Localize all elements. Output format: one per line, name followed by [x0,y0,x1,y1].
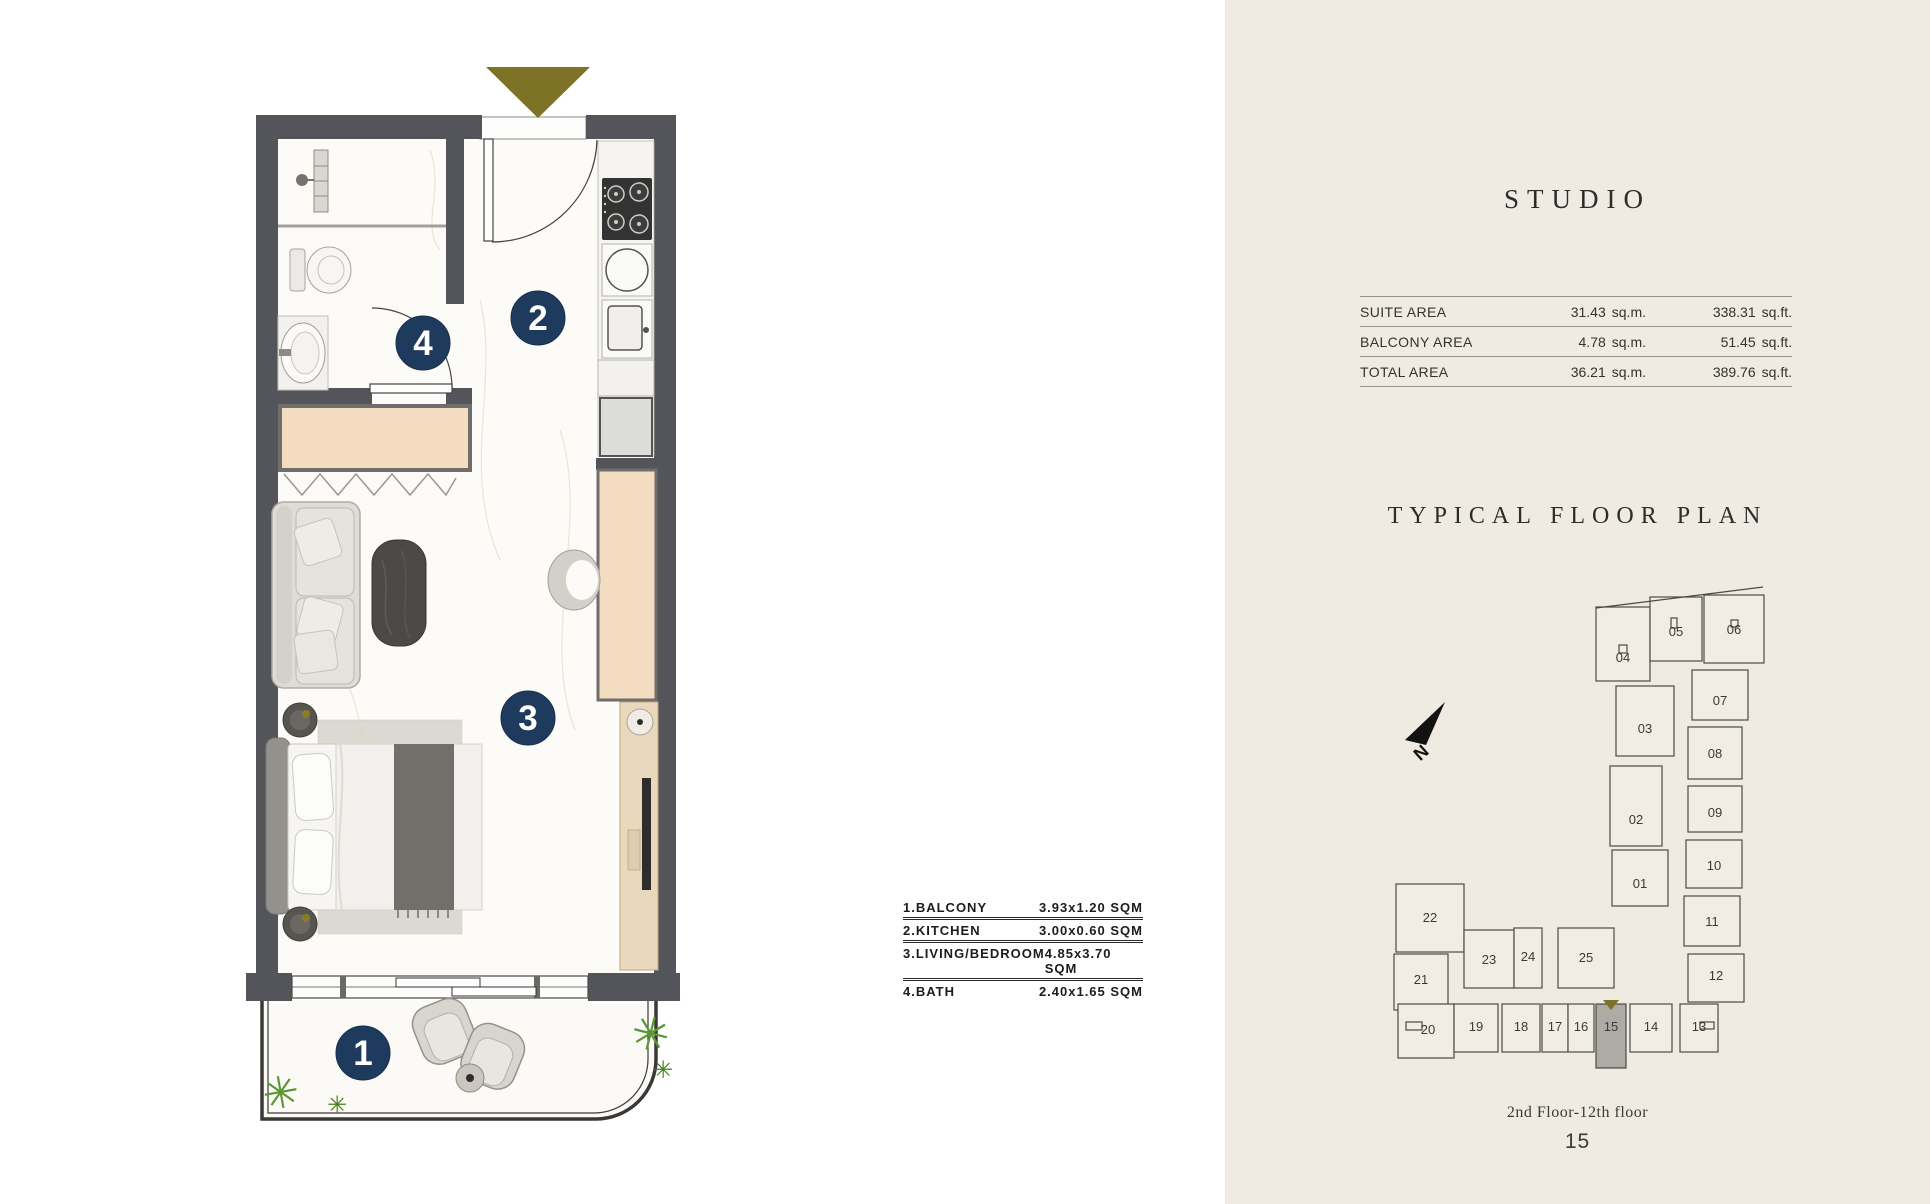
unit-number: 05 [1669,624,1683,639]
sqft-value: 338.31 [1713,304,1756,320]
unit-15-highlight [1596,1004,1626,1068]
legend-row: 4.BATH 2.40x1.65 SQM [903,981,1143,1001]
legend-row: 3.LIVING/BEDROOM 4.85x3.70 SQM [903,943,1143,981]
area-label: BALCONY AREA [1360,334,1518,350]
dimensions-legend: 1.BALCONY 3.93x1.20 SQM 2.KITCHEN 3.00x0… [903,897,1143,1001]
typical-floor-plan-heading: TYPICAL FLOOR PLAN [1225,503,1930,530]
legend-label: 1.BALCONY [903,900,987,915]
unit-type-title: STUDIO [1225,184,1930,215]
faucet-icon [279,349,291,356]
area-label: TOTAL AREA [1360,364,1518,380]
unit-number: 19 [1469,1019,1483,1034]
north-compass-icon: N [1395,698,1455,768]
unit-number-label: 15 [1225,1130,1930,1154]
unit-number: 13 [1692,1019,1706,1034]
sqft-value: 51.45 [1721,334,1756,350]
legend-size: 2.40x1.65 SQM [1039,984,1143,999]
studio-floorplan: ✳ ✳ ✳ ✳ 1 2 3 4 [246,55,680,1145]
tv [642,778,651,890]
marker-balcony: 1 [336,1026,390,1080]
area-row: SUITE AREA 31.43sq.m. 338.31sq.ft. [1360,296,1792,326]
svg-text:3: 3 [518,699,537,738]
svg-text:2: 2 [528,299,547,338]
unit-number: 06 [1727,622,1741,637]
legend-label: 2.KITCHEN [903,923,981,938]
typical-floor-plan: 04 05 06 07 03 08 02 09 01 10 11 12 22 2… [1380,575,1800,1080]
sqft-unit: sq.ft. [1762,364,1792,380]
plant-icon: ✳ [327,1091,347,1119]
legend-row: 2.KITCHEN 3.00x0.60 SQM [903,920,1143,943]
tv-console [620,702,658,970]
coffee-table [372,540,426,646]
unit-number: 07 [1713,693,1727,708]
legend-size: 3.00x0.60 SQM [1039,923,1143,938]
sqm-unit: sq.m. [1612,304,1646,320]
unit-number: 10 [1707,858,1721,873]
kitchen-sink [608,306,642,350]
plant-icon: ✳ [653,1056,673,1084]
entrance-marker-icon [486,67,590,118]
sqm-unit: sq.m. [1612,334,1646,350]
sqft-unit: sq.ft. [1762,304,1792,320]
balcony-table [456,1064,484,1092]
unit-number: 16 [1574,1019,1588,1034]
kitchen-fixtures [598,141,654,456]
legend-label: 4.BATH [903,984,955,999]
marker-living-bedroom: 3 [501,691,555,745]
throw-blanket [394,744,454,910]
sqm-value: 36.21 [1571,364,1606,380]
sqm-unit: sq.m. [1612,364,1646,380]
toilet-tank [290,249,305,291]
unit-number: 01 [1633,876,1647,891]
unit-number: 24 [1521,949,1535,964]
unit-number: 21 [1414,972,1428,987]
washing-machine [600,398,652,456]
entrance-threshold [480,117,586,139]
legend-size: 4.85x3.70 SQM [1045,946,1143,976]
unit-number: 12 [1709,968,1723,983]
legend-row: 1.BALCONY 3.93x1.20 SQM [903,897,1143,920]
marker-bath: 4 [396,316,450,370]
area-label: SUITE AREA [1360,304,1518,320]
unit-number: 02 [1629,812,1643,827]
slider-panel [452,987,536,996]
sqm-value: 31.43 [1571,304,1606,320]
unit-number: 23 [1482,952,1496,967]
area-row: BALCONY AREA 4.78sq.m. 51.45sq.ft. [1360,326,1792,356]
sqm-value: 4.78 [1579,334,1606,350]
svg-text:4: 4 [413,324,433,363]
brochure-page: ✳ ✳ ✳ ✳ 1 2 3 4 1.BALCONY 3.93x1.20 SQM [0,0,1930,1204]
bath-door-leaf [370,384,452,393]
unit-number: 25 [1579,950,1593,965]
unit-number: 18 [1514,1019,1528,1034]
unit-number: 03 [1638,721,1652,736]
unit-number: 04 [1616,650,1630,665]
sqft-unit: sq.ft. [1762,334,1792,350]
balcony-window [292,976,588,998]
compass-label: N [1409,741,1432,765]
unit-number: 09 [1708,805,1722,820]
unit-number: 22 [1423,910,1437,925]
unit-number: 15 [1604,1019,1618,1034]
unit-number: 17 [1548,1019,1562,1034]
unit-number: 08 [1708,746,1722,761]
slider-panel [396,978,480,987]
info-panel: STUDIO SUITE AREA 31.43sq.m. 338.31sq.ft… [1225,0,1930,1204]
sofa [272,502,360,688]
svg-text:1: 1 [353,1034,372,1073]
unit-number: 14 [1644,1019,1658,1034]
sqft-value: 389.76 [1713,364,1756,380]
area-row: TOTAL AREA 36.21sq.m. 389.76sq.ft. [1360,356,1792,387]
headboard [266,738,290,914]
legend-label: 3.LIVING/BEDROOM [903,946,1045,976]
marker-kitchen: 2 [511,291,565,345]
area-table: SUITE AREA 31.43sq.m. 338.31sq.ft. BALCO… [1360,296,1792,387]
legend-size: 3.93x1.20 SQM [1039,900,1143,915]
floor-range-label: 2nd Floor-12th floor [1225,1104,1930,1122]
unit-number: 11 [1705,914,1719,929]
unit-number: 20 [1421,1022,1435,1037]
